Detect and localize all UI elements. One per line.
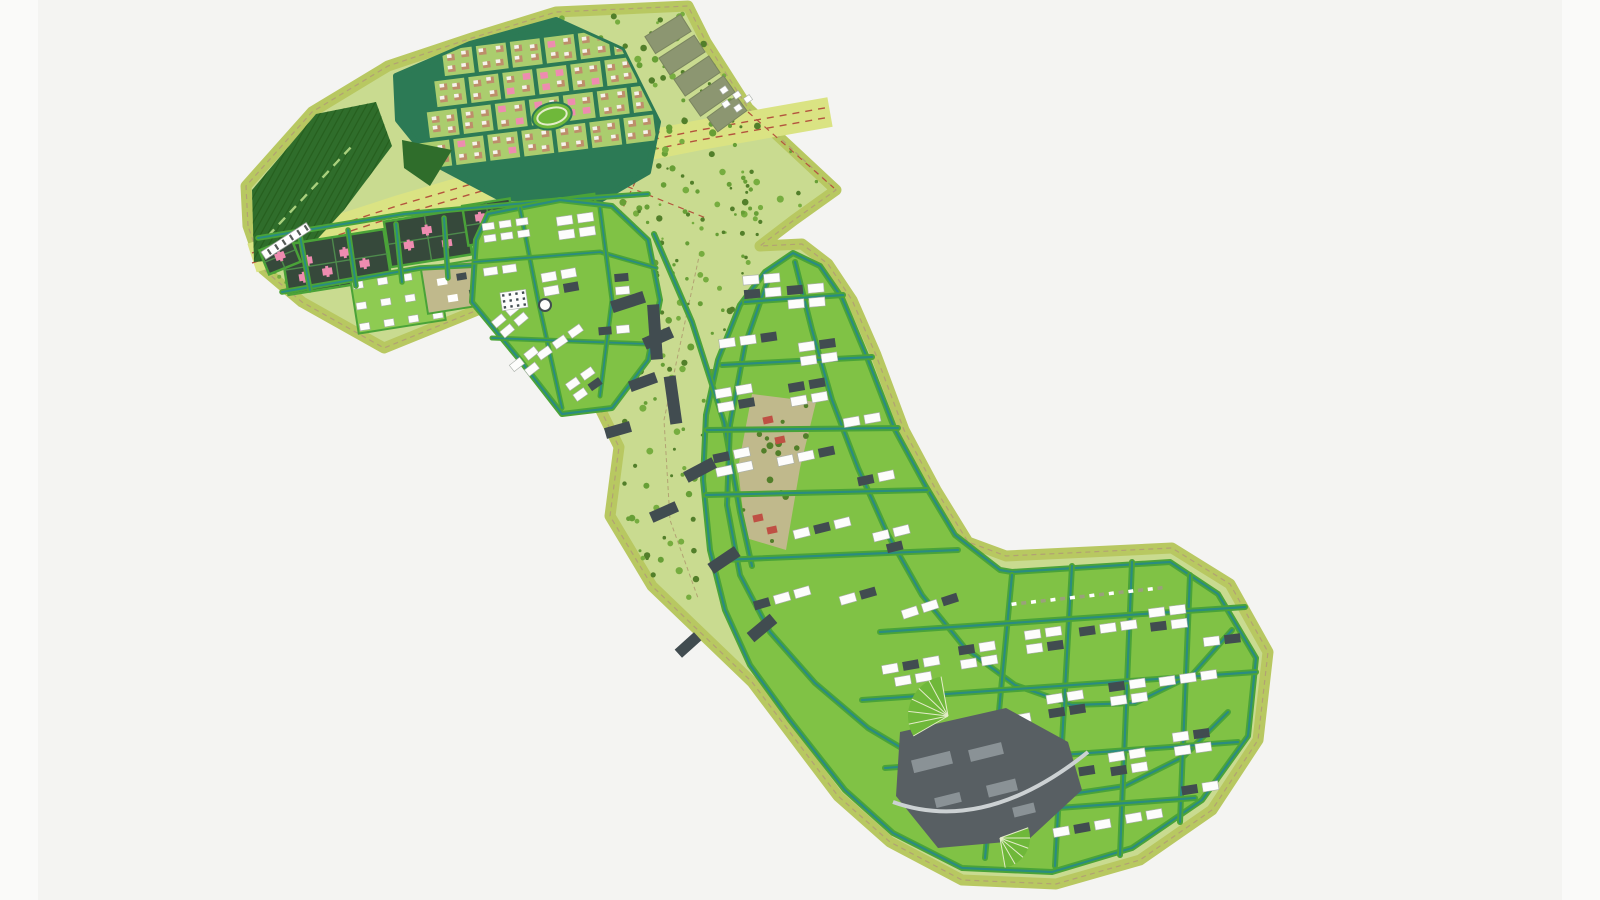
master-plan-svg <box>0 0 1600 900</box>
site-plan-figure <box>0 0 1600 900</box>
